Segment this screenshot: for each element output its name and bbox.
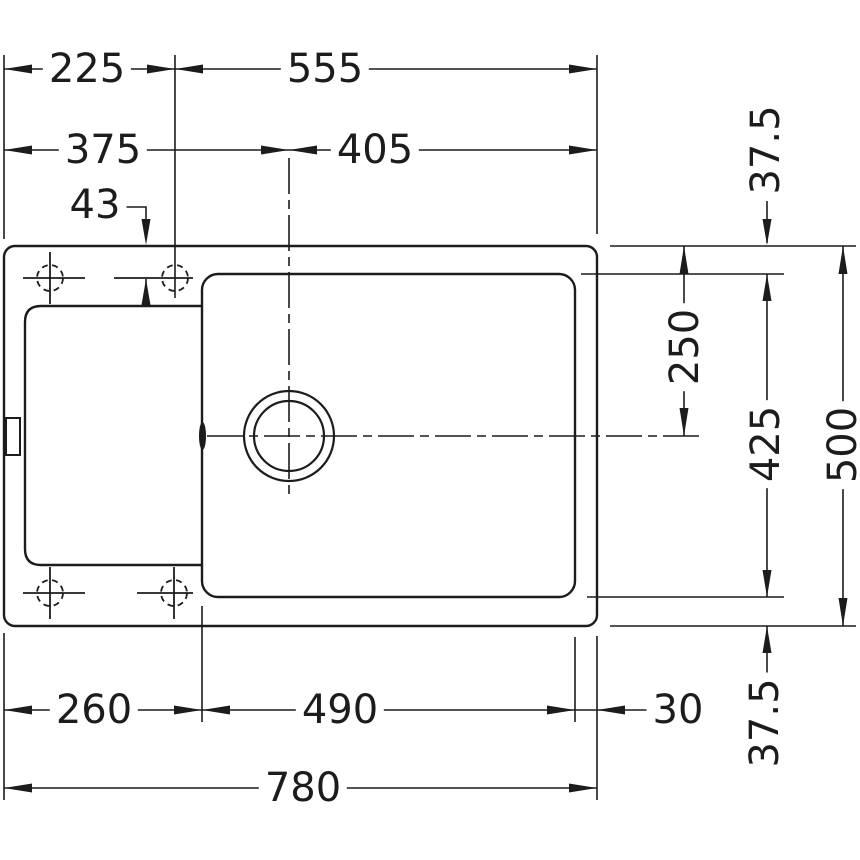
sink-technical-drawing: 225 555 375 405 43 250 37.5 425 500 37.5… xyxy=(0,0,860,860)
bowl-edge-marker xyxy=(199,422,206,450)
dim-label-43: 43 xyxy=(64,185,127,225)
dimline-43-leader xyxy=(124,207,146,221)
centerlines xyxy=(207,158,699,497)
dim-label-405: 405 xyxy=(331,130,419,170)
dim-label-225: 225 xyxy=(43,49,131,89)
dim-label-30: 30 xyxy=(647,690,710,730)
dim-label-375: 375 xyxy=(59,130,147,170)
dim-label-555: 555 xyxy=(281,49,369,89)
drainboard-outline xyxy=(25,306,202,565)
dim-label-500: 500 xyxy=(823,401,860,489)
overflow-slot xyxy=(6,418,20,455)
dim-label-425: 425 xyxy=(746,400,786,488)
tap-hole-top-left xyxy=(23,252,85,304)
dim-label-37-5-top: 37.5 xyxy=(746,99,786,200)
dim-label-780: 780 xyxy=(259,768,347,808)
tap-hole-bottom-right xyxy=(137,567,193,619)
dim-label-37-5-bottom: 37.5 xyxy=(745,672,785,773)
dim-label-490: 490 xyxy=(296,690,384,730)
dim-label-260: 260 xyxy=(50,690,138,730)
arrowheads xyxy=(4,65,848,793)
dimension-lines xyxy=(4,69,843,788)
dim-label-250: 250 xyxy=(665,303,705,391)
tap-hole-top-right xyxy=(114,265,193,291)
tap-hole-bottom-left xyxy=(23,567,85,619)
